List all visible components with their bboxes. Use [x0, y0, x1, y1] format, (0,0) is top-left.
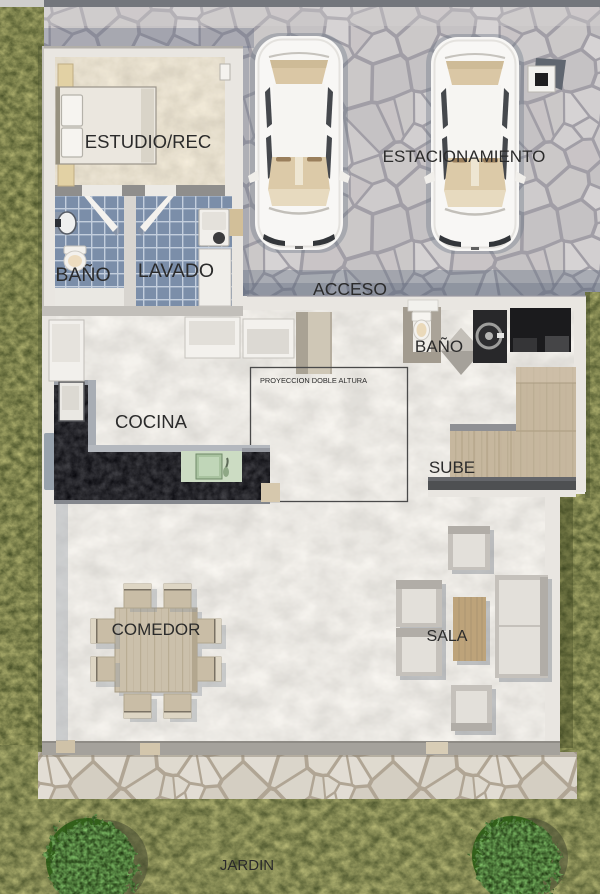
svg-text:BAÑO: BAÑO — [415, 337, 463, 356]
svg-text:ACCESO: ACCESO — [313, 279, 387, 299]
svg-text:COCINA: COCINA — [115, 411, 188, 432]
svg-text:LAVADO: LAVADO — [138, 260, 214, 282]
svg-text:ESTACIONAMIENTO: ESTACIONAMIENTO — [383, 147, 546, 166]
svg-text:JARDIN: JARDIN — [220, 857, 274, 874]
svg-text:BAÑO: BAÑO — [55, 262, 110, 286]
svg-text:ESTUDIO/REC: ESTUDIO/REC — [85, 131, 211, 152]
svg-text:SALA: SALA — [427, 628, 468, 645]
svg-text:SUBE: SUBE — [429, 458, 475, 477]
svg-text:PROYECCION DOBLE ALTURA: PROYECCION DOBLE ALTURA — [260, 376, 367, 385]
svg-text:COMEDOR: COMEDOR — [112, 620, 201, 639]
